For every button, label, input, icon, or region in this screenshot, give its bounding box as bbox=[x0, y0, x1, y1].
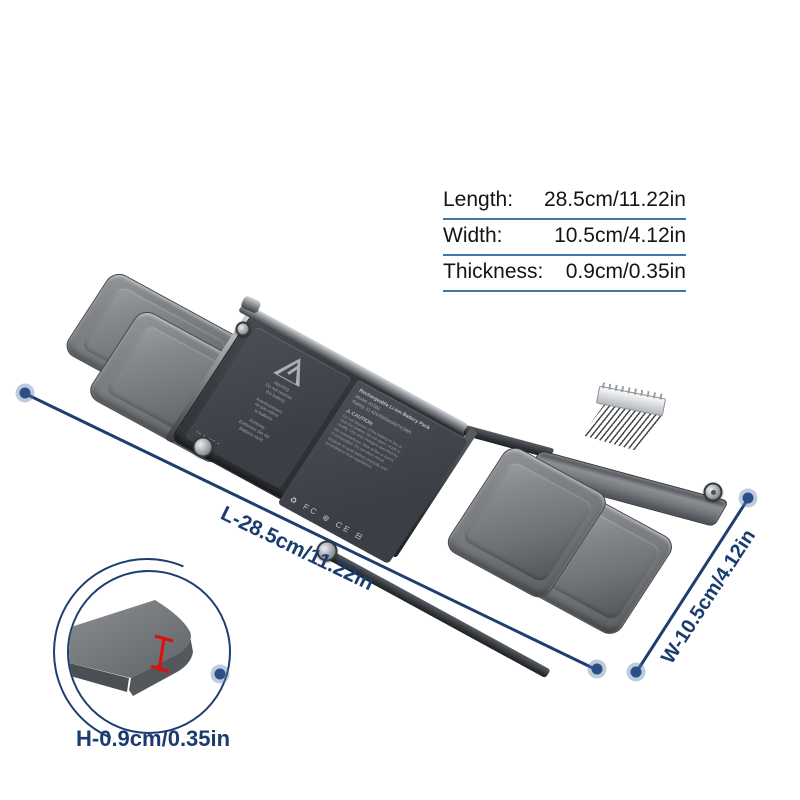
thickness-zoom-circle bbox=[67, 570, 231, 734]
spec-value: 0.9cm/0.35in bbox=[566, 260, 686, 284]
product-image: Length: 28.5cm/11.22in Width: 10.5cm/4.1… bbox=[0, 0, 800, 800]
dimension-endpoint-dot bbox=[215, 669, 226, 680]
spec-row-width: Width: 10.5cm/4.12in bbox=[443, 220, 686, 256]
width-dimension-label: W-10.5cm/4.12in bbox=[657, 526, 761, 669]
spec-label: Thickness: bbox=[443, 260, 543, 284]
spec-row-thickness: Thickness: 0.9cm/0.35in bbox=[443, 256, 686, 292]
spec-value: 10.5cm/4.12in bbox=[554, 224, 686, 248]
dimension-endpoint-dot bbox=[743, 493, 754, 504]
plate-screw-hole bbox=[704, 483, 723, 502]
spec-value: 28.5cm/11.22in bbox=[544, 188, 686, 212]
width-dimension-line bbox=[635, 498, 749, 673]
spec-row-length: Length: 28.5cm/11.22in bbox=[443, 184, 686, 220]
spec-table: Length: 28.5cm/11.22in Width: 10.5cm/4.1… bbox=[443, 184, 686, 292]
battery-corner-closeup bbox=[69, 572, 229, 732]
dimension-endpoint-dot bbox=[631, 667, 642, 678]
corner-screw bbox=[193, 437, 214, 458]
corner-screw bbox=[236, 322, 251, 337]
dimension-endpoint-dot bbox=[592, 664, 603, 675]
certification-marks: ♻ FC ⊗ CE ⊟ bbox=[288, 495, 367, 543]
dimension-endpoint-dot bbox=[20, 388, 31, 399]
height-dimension-label: H-0.9cm/0.35in bbox=[76, 726, 230, 752]
spec-label: Length: bbox=[443, 188, 513, 212]
spec-label: Width: bbox=[443, 224, 503, 248]
